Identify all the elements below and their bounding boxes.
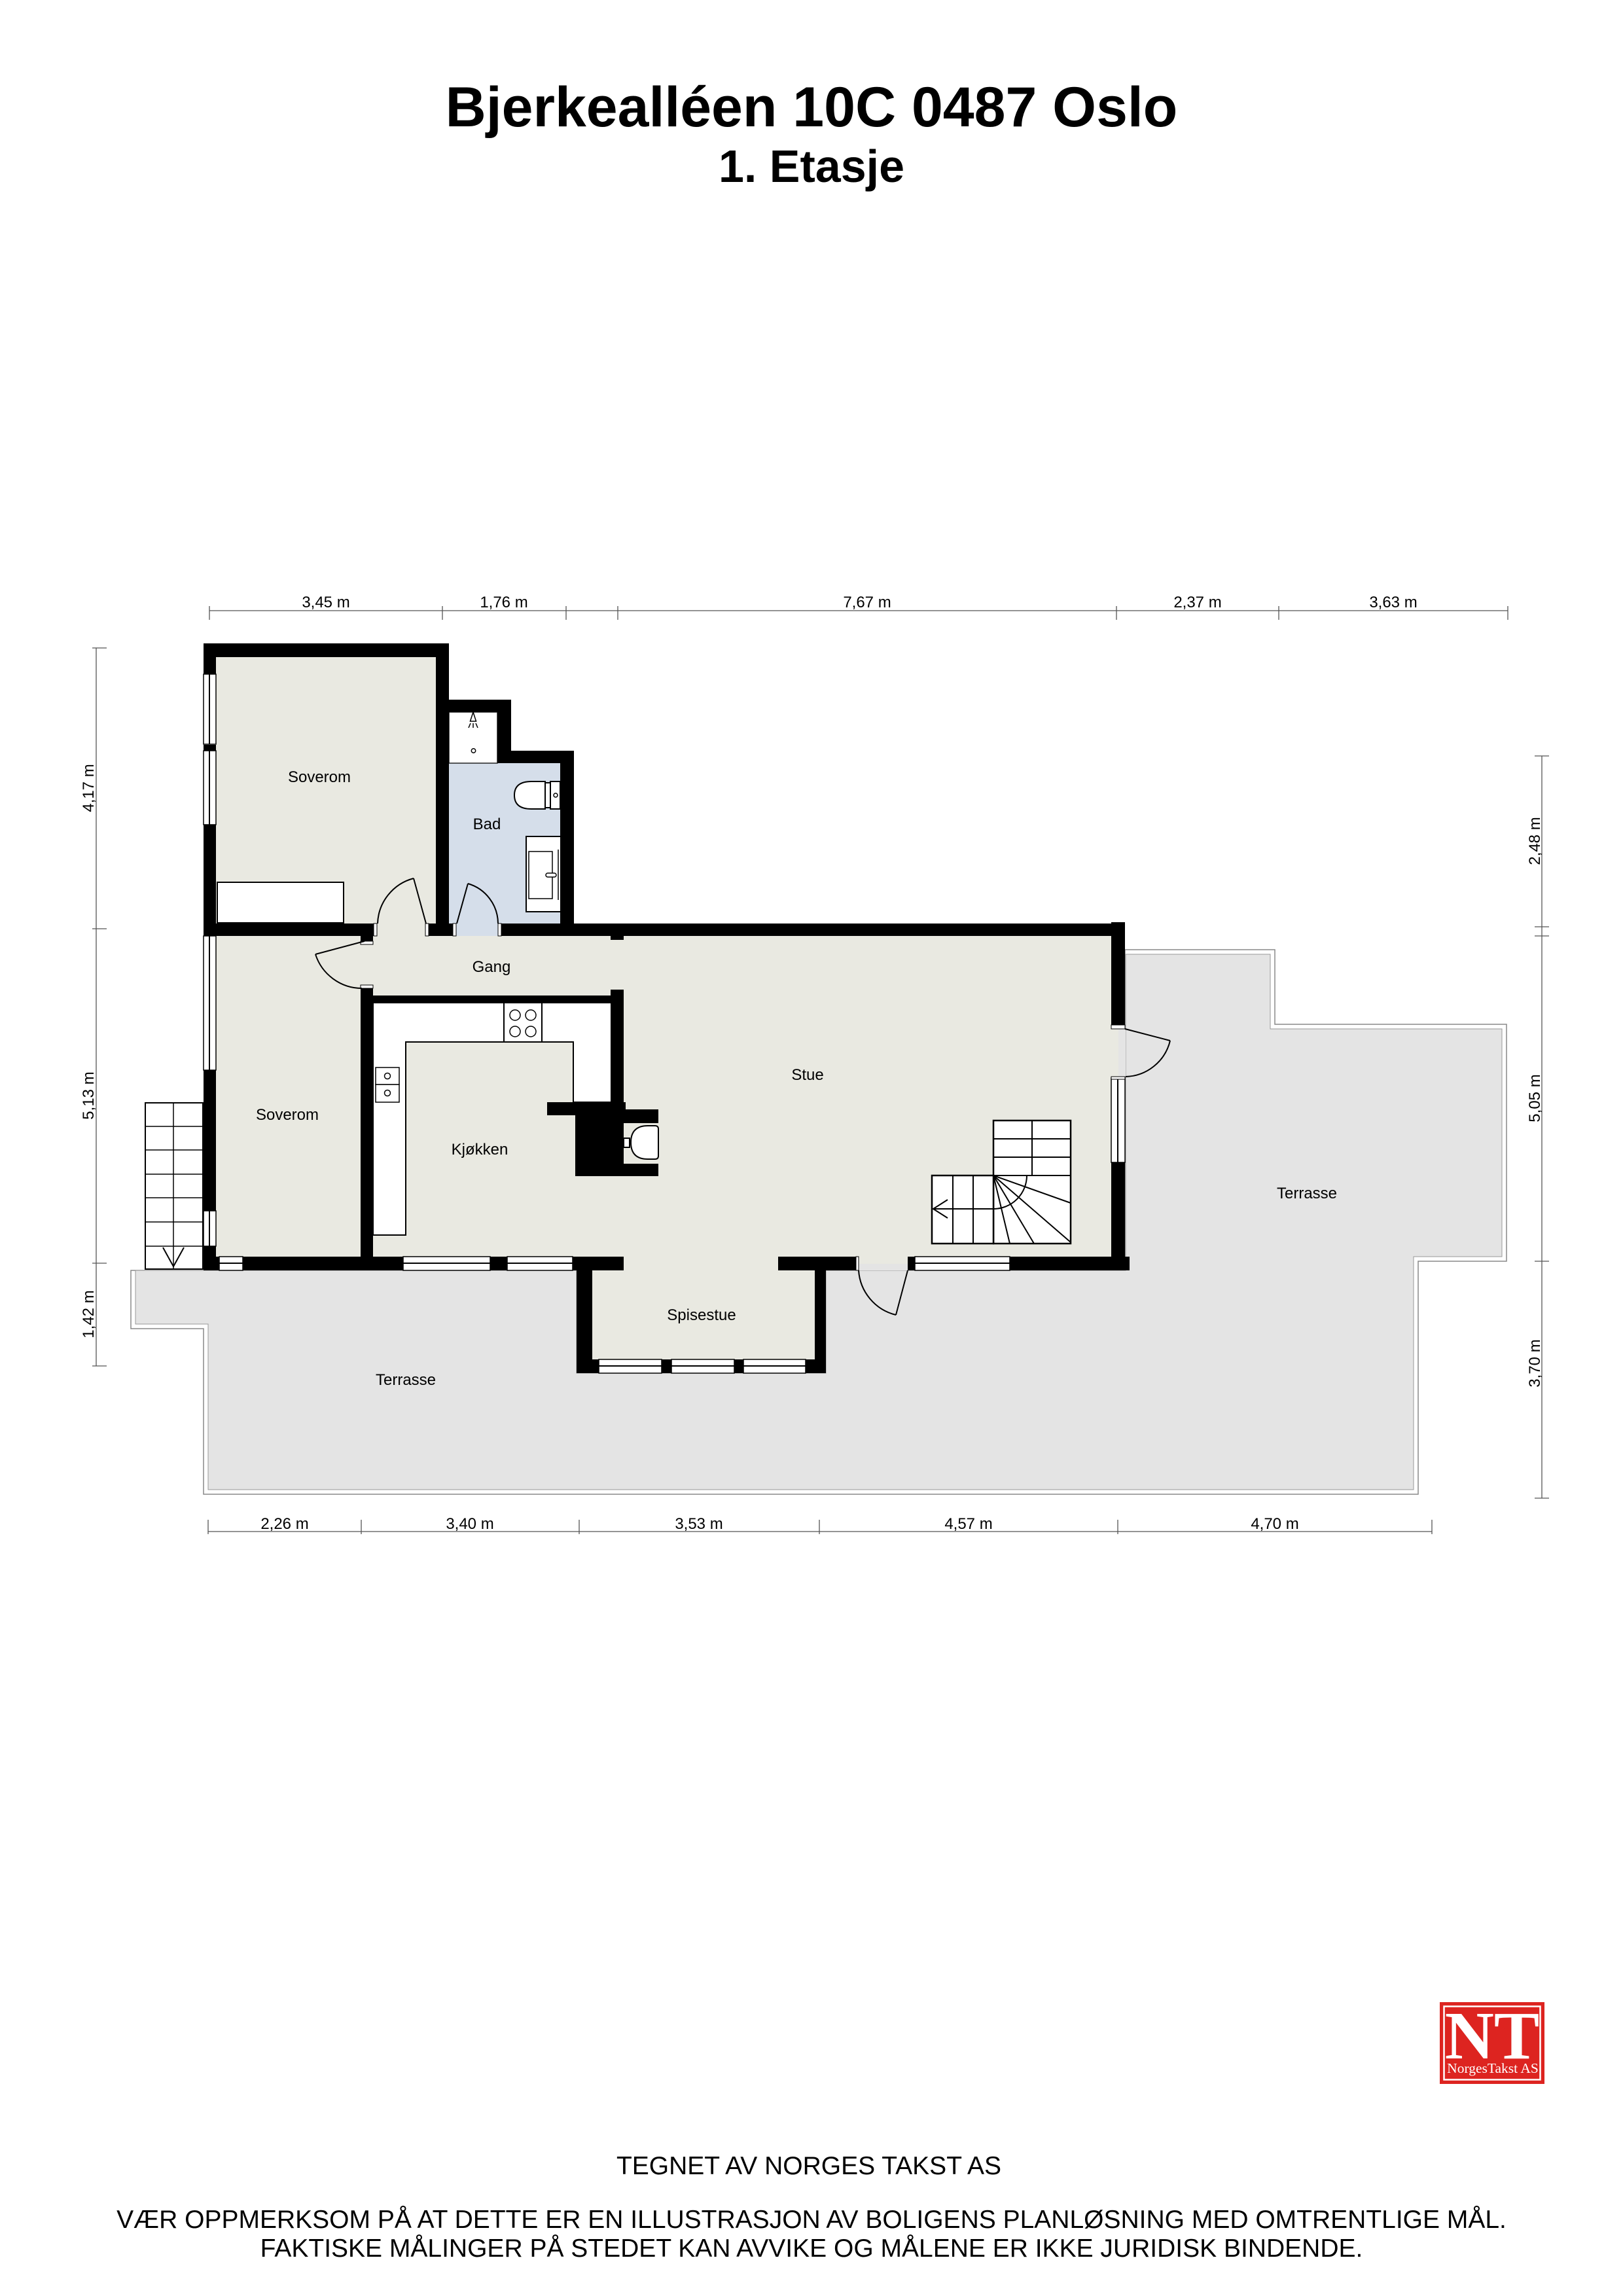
svg-text:4,17 m: 4,17 m [80, 764, 98, 812]
svg-text:NorgesTakst AS: NorgesTakst AS [1447, 2060, 1539, 2076]
svg-text:1,76 m: 1,76 m [480, 594, 527, 611]
svg-text:3,45 m: 3,45 m [302, 594, 349, 611]
svg-text:3,63 m: 3,63 m [1369, 594, 1417, 611]
svg-text:3,40 m: 3,40 m [446, 1515, 493, 1533]
svg-text:3,53 m: 3,53 m [675, 1515, 722, 1533]
svg-text:7,67 m: 7,67 m [843, 594, 891, 611]
svg-text:Soverom: Soverom [256, 1106, 319, 1124]
svg-text:2,26 m: 2,26 m [260, 1515, 308, 1533]
svg-text:Terrasse: Terrasse [1277, 1185, 1337, 1202]
svg-text:VÆR OPPMERKSOM PÅ AT DETTE ER: VÆR OPPMERKSOM PÅ AT DETTE ER EN ILLUSTR… [116, 2205, 1507, 2234]
svg-text:Terrasse: Terrasse [376, 1371, 436, 1389]
svg-text:Kjøkken: Kjøkken [452, 1141, 508, 1158]
svg-text:5,05 m: 5,05 m [1526, 1074, 1544, 1122]
svg-text:2,37 m: 2,37 m [1173, 594, 1221, 611]
svg-text:5,13 m: 5,13 m [80, 1071, 98, 1119]
svg-text:Bad: Bad [473, 816, 501, 833]
svg-text:Gang: Gang [473, 958, 511, 976]
svg-text:TEGNET AV NORGES TAKST AS: TEGNET AV NORGES TAKST AS [616, 2152, 1001, 2180]
svg-text:3,70 m: 3,70 m [1526, 1339, 1544, 1387]
svg-text:1,42 m: 1,42 m [80, 1290, 98, 1338]
svg-text:FAKTISKE MÅLINGER PÅ STEDET KA: FAKTISKE MÅLINGER PÅ STEDET KAN AVVIKE O… [260, 2234, 1363, 2263]
svg-text:Stue: Stue [791, 1066, 823, 1084]
svg-text:2,48 m: 2,48 m [1526, 817, 1544, 865]
svg-text:Soverom: Soverom [288, 768, 351, 786]
svg-text:1. Etasje: 1. Etasje [719, 141, 904, 192]
svg-text:Spisestue: Spisestue [667, 1306, 736, 1324]
svg-text:4,57 m: 4,57 m [944, 1515, 992, 1533]
svg-text:4,70 m: 4,70 m [1251, 1515, 1298, 1533]
svg-text:Bjerkealléen 10C 0487 Oslo: Bjerkealléen 10C 0487 Oslo [446, 76, 1178, 139]
